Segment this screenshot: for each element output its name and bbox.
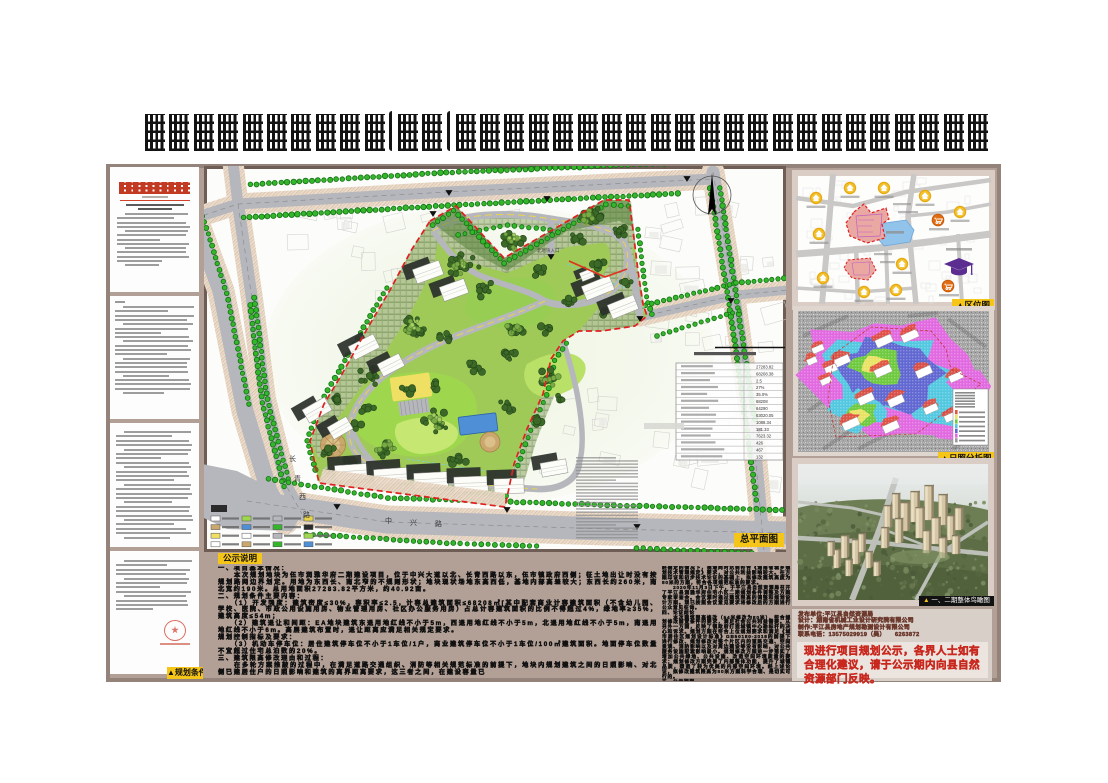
svg-text:68208: 68208 (756, 399, 768, 404)
svg-text:路: 路 (435, 519, 442, 528)
svg-text:27%: 27% (756, 385, 765, 390)
svg-text:2.5: 2.5 (756, 378, 762, 383)
svg-text:426: 426 (756, 441, 764, 446)
svg-text:北地块入口: 北地块入口 (537, 247, 560, 254)
svg-text:132: 132 (756, 455, 764, 460)
svg-text:中: 中 (385, 516, 392, 525)
svg-text:兴: 兴 (410, 518, 417, 527)
svg-text:西: 西 (299, 493, 306, 501)
svg-text:467: 467 (756, 448, 764, 453)
svg-text:64290: 64290 (756, 406, 768, 411)
svg-text:27283.82: 27283.82 (756, 364, 774, 369)
svg-text:63020.05: 63020.05 (756, 413, 774, 418)
svg-text:长: 长 (289, 454, 296, 463)
svg-text:7623.32: 7623.32 (756, 434, 772, 439)
svg-text:青: 青 (294, 474, 301, 483)
svg-text:68208.38: 68208.38 (756, 371, 774, 376)
svg-text:路: 路 (303, 510, 310, 519)
svg-text:35.0%: 35.0% (756, 392, 768, 397)
svg-text:181.33: 181.33 (756, 427, 769, 432)
svg-text:1088.34: 1088.34 (756, 420, 772, 425)
